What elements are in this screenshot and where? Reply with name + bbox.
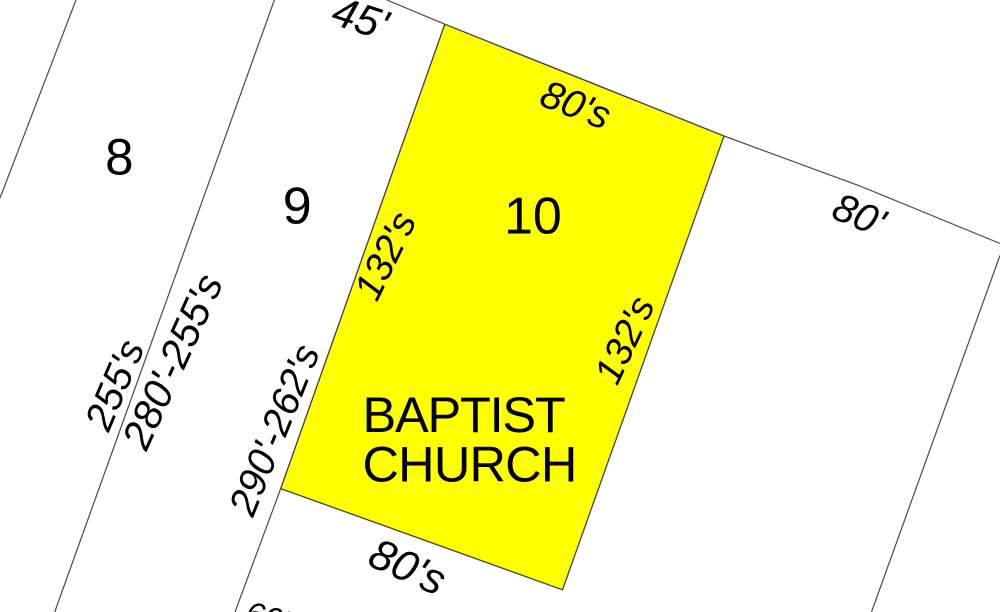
svg-text:CHURCH: CHURCH [363,435,577,492]
svg-text:10: 10 [504,188,562,246]
svg-text:8: 8 [105,128,133,185]
svg-text:9: 9 [283,177,312,235]
